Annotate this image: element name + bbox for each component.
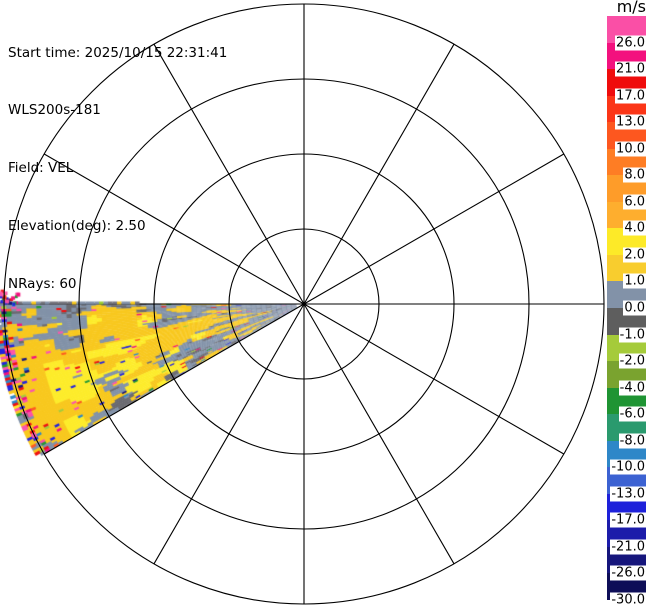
colorbar-tick-label: -8.0 [619,433,646,448]
colorbar-tick-label: -30.0 [610,593,646,608]
colorbar-tick-label: -6.0 [619,407,646,422]
ppi-scan-window: { "header": { "lines": [ "Start time: 20… [0,0,650,610]
colorbar-tick-label: 13.0 [615,115,646,130]
colorbar-tick-label: 10.0 [615,141,646,156]
colorbar-tick-label: -4.0 [619,380,646,395]
colorbar-tick-label: 2.0 [623,247,646,262]
annotation-field: Field: VEL [8,159,227,178]
scan-header-annotations: Start time: 2025/10/15 22:31:41 WLS200s-… [8,5,227,314]
annotation-instrument: WLS200s-181 [8,101,227,120]
colorbar-tick-label: 6.0 [623,194,646,209]
annotation-elevation: Elevation(deg): 2.50 [8,217,227,236]
colorbar-unit-label: m/s [617,0,646,15]
colorbar-tick-label: 0.0 [623,301,646,316]
colorbar-tick-label: -10.0 [610,460,646,475]
colorbar-tick-label: 1.0 [623,274,646,289]
annotation-start-time: Start time: 2025/10/15 22:31:41 [8,44,227,63]
colorbar-tick-label: 4.0 [623,221,646,236]
colorbar-tick-label: 8.0 [623,168,646,183]
colorbar-tick-label: -17.0 [610,513,646,528]
colorbar-tick-label: -13.0 [610,486,646,501]
colorbar-tick-label: 26.0 [615,35,646,50]
colorbar-tick-label: -1.0 [619,327,646,342]
colorbar-tick-label: -2.0 [619,354,646,369]
annotation-nrays: NRays: 60 [8,275,227,294]
colorbar-tick-label: -21.0 [610,539,646,554]
colorbar-tick-label: 21.0 [615,62,646,77]
colorbar-tick-label: 17.0 [615,88,646,103]
colorbar-tick-label: -26.0 [610,566,646,581]
